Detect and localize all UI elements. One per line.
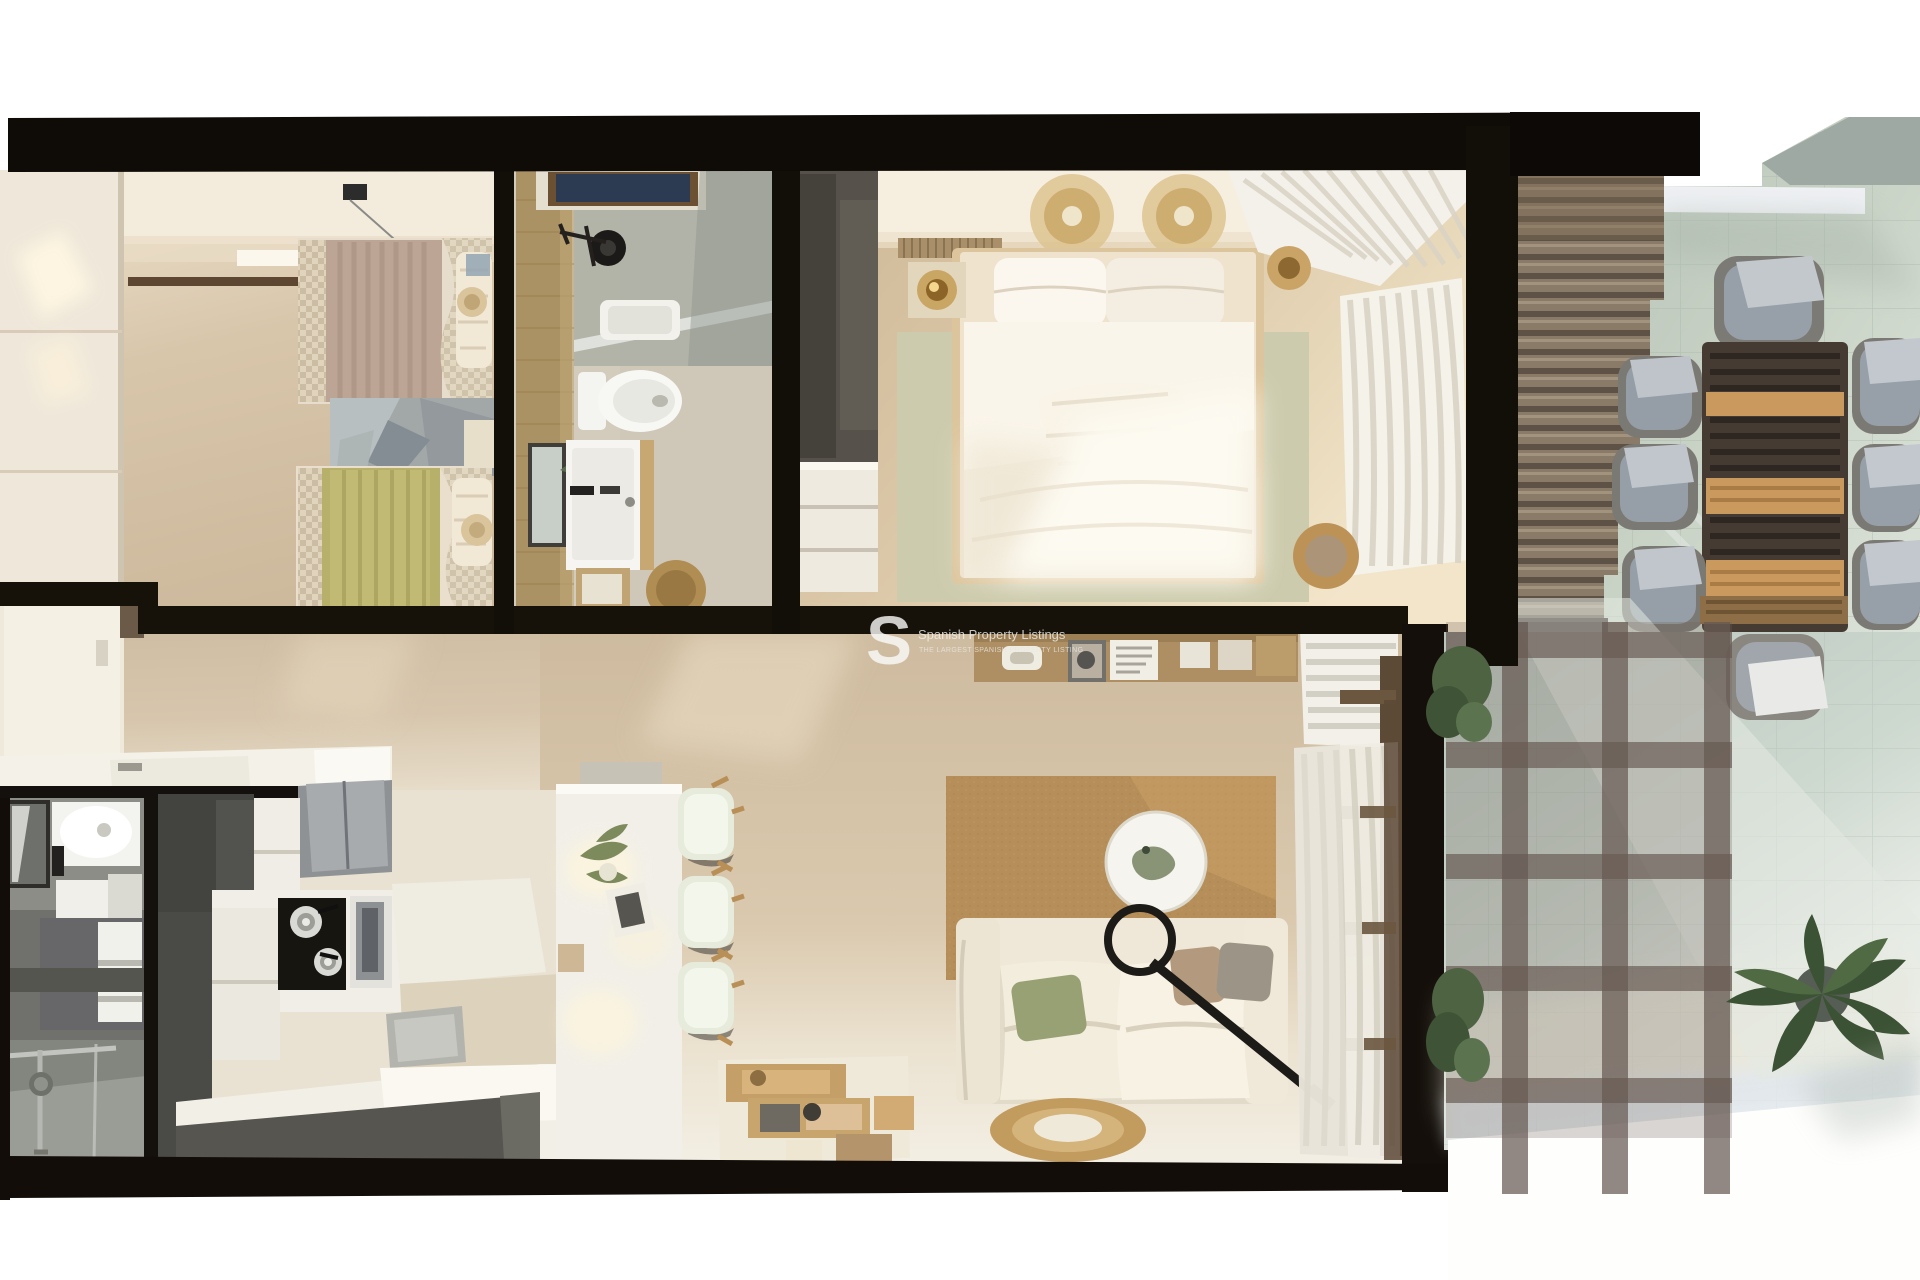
svg-text:Spanish Property Listings: Spanish Property Listings [918, 627, 1066, 642]
svg-text:S: S [866, 602, 912, 679]
svg-text:THE LARGEST SPANISH PROPERTY L: THE LARGEST SPANISH PROPERTY LISTING [919, 647, 1083, 654]
